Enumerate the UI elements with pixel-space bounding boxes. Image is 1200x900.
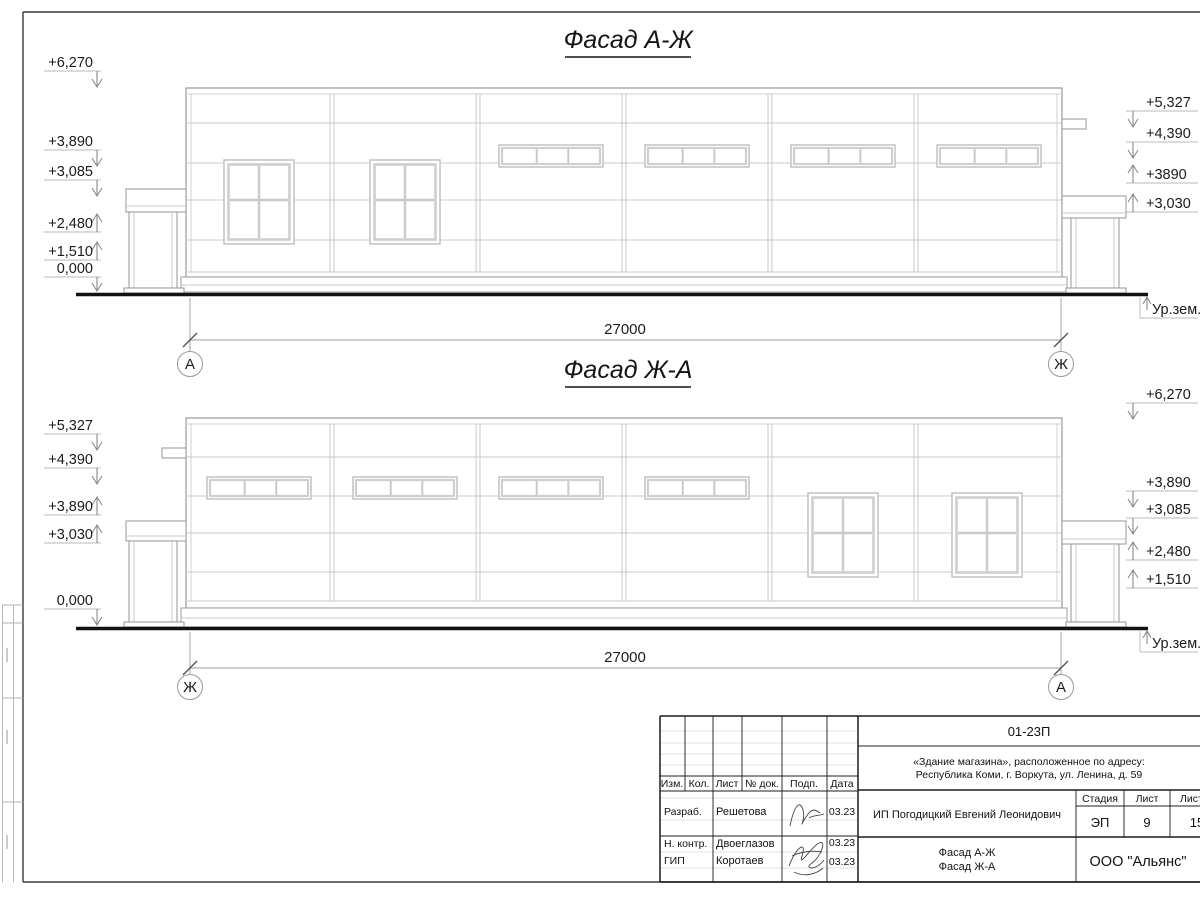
sheet-header: Лист xyxy=(1136,793,1159,805)
axis-label-left: А xyxy=(185,356,195,373)
elevation-value: +5,327 xyxy=(1146,95,1191,111)
axis-label-left: Ж xyxy=(183,679,197,696)
row-name: Коротаев xyxy=(716,855,764,867)
col-list: Лист xyxy=(716,778,739,790)
elevation-value: +3,890 xyxy=(48,134,93,150)
elevation-value: 0,000 xyxy=(57,261,93,277)
facade-title: Фасад Ж-А xyxy=(564,356,693,384)
elevation-value: +5,327 xyxy=(48,418,93,434)
row-date: 03.23 xyxy=(829,837,855,849)
row-role: Н. контр. xyxy=(664,838,707,850)
object-address-line1: «Здание магазина», расположенное по адре… xyxy=(913,756,1145,768)
elevation-value: +1,510 xyxy=(1146,572,1191,588)
elevation-value: +3,890 xyxy=(1146,475,1191,491)
organization-name: ООО "Альянс" xyxy=(1090,854,1187,870)
window-strip xyxy=(937,145,1041,167)
window-strip xyxy=(207,477,311,499)
elevation-value: +4,390 xyxy=(1146,126,1191,142)
facade-title: Фасад А-Ж xyxy=(564,26,695,54)
window-strip xyxy=(645,477,749,499)
dimension-value: 27000 xyxy=(604,321,646,338)
col-ndok: № док. xyxy=(745,778,779,790)
elevation-value: +3890 xyxy=(1146,167,1187,183)
row-role: Разраб. xyxy=(664,806,702,818)
elevation-value: +4,390 xyxy=(48,452,93,468)
ground-level-label: Ур.зем. xyxy=(1152,302,1200,318)
col-data: Дата xyxy=(830,778,853,790)
col-izm: Изм. xyxy=(661,778,684,790)
wall-ledge xyxy=(1062,119,1086,129)
drawing-sheet: Фасад А-Ж xyxy=(0,0,1200,900)
window-strip xyxy=(791,145,895,167)
porch-left xyxy=(124,189,186,293)
row-name: Двоеглазов xyxy=(716,838,775,850)
window-strip xyxy=(499,477,603,499)
row-date: 03.23 xyxy=(829,856,855,868)
elevation-value: +3,030 xyxy=(1146,196,1191,212)
porch-right xyxy=(1062,521,1126,627)
window-large xyxy=(952,493,1022,577)
elevation-value: +2,480 xyxy=(48,216,93,232)
row-role: ГИП xyxy=(664,855,685,867)
elevation-value: +2,480 xyxy=(1146,544,1191,560)
elevation-value: +3,085 xyxy=(48,164,93,180)
document-code: 01-23П xyxy=(1008,724,1051,739)
window-strip xyxy=(645,145,749,167)
sheets-value: 15 xyxy=(1190,815,1200,830)
window-strip xyxy=(499,145,603,167)
row-name: Решетова xyxy=(716,806,767,818)
elevation-value: +6,270 xyxy=(48,55,93,71)
facade-aj-building xyxy=(124,88,1126,293)
elevation-value: +1,510 xyxy=(48,244,93,260)
elevation-value: +3,890 xyxy=(48,499,93,515)
axis-label-right: Ж xyxy=(1054,356,1068,373)
client-name: ИП Погодицкий Евгений Леонидович xyxy=(873,809,1061,821)
window-large xyxy=(808,493,878,577)
sheet-value: 9 xyxy=(1143,815,1150,830)
stage-header: Стадия xyxy=(1082,793,1118,805)
sheets-header: Листов xyxy=(1180,793,1200,805)
row-date: 03.23 xyxy=(829,806,855,818)
elevation-value: 0,000 xyxy=(57,593,93,609)
window-strip xyxy=(353,477,457,499)
window-large xyxy=(224,160,294,244)
sheet-title-line2: Фасад Ж-А xyxy=(939,861,996,873)
sheet-title-line1: Фасад А-Ж xyxy=(939,847,996,859)
elevation-value: +6,270 xyxy=(1146,387,1191,403)
elevation-value: +3,030 xyxy=(48,527,93,543)
facade-ja-building xyxy=(124,418,1126,627)
window-large xyxy=(370,160,440,244)
axis-label-right: А xyxy=(1056,679,1066,696)
stage-value: ЭП xyxy=(1091,815,1110,830)
col-podp: Подп. xyxy=(790,778,818,790)
dimension-value: 27000 xyxy=(604,649,646,666)
ground-level-label: Ур.зем. xyxy=(1152,636,1200,652)
elevation-value: +3,085 xyxy=(1146,502,1191,518)
object-address-line2: Республика Коми, г. Воркута, ул. Ленина,… xyxy=(916,769,1143,781)
col-kol: Кол. xyxy=(689,778,710,790)
wall-ledge xyxy=(162,448,186,458)
